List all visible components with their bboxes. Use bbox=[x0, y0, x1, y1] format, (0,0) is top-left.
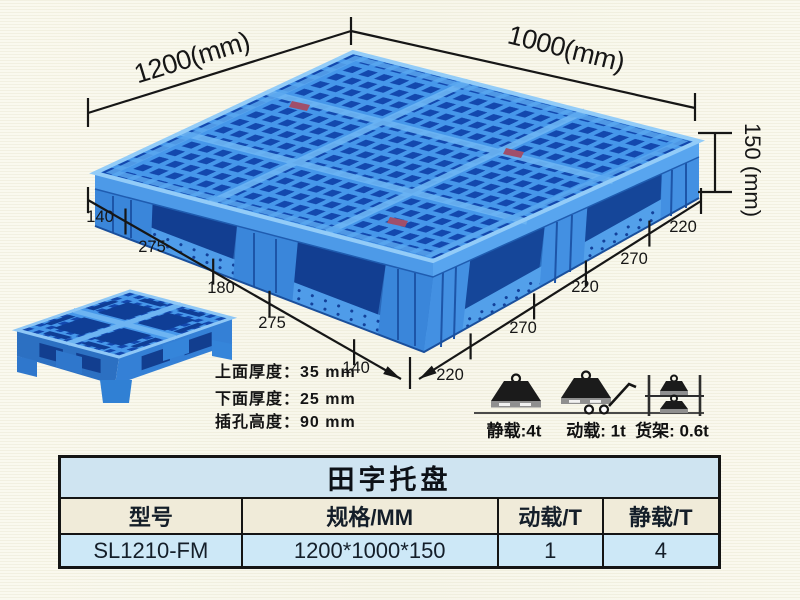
table-title: 田字托盘 bbox=[60, 457, 720, 499]
header-dynamic-load: 动载/T bbox=[498, 498, 603, 534]
pallet-product-sheet: 1200(mm) 1000(mm) 150 (mm) 140 275 180 2… bbox=[0, 0, 800, 600]
static-load-icon bbox=[491, 375, 541, 408]
dim-label-height: 150 (mm) bbox=[741, 123, 763, 217]
spec-bottom-thickness: 下面厚度：25 mm bbox=[215, 385, 356, 409]
header-static-load: 静载/T bbox=[603, 498, 720, 534]
header-spec: 规格/MM bbox=[242, 498, 498, 534]
header-model: 型号 bbox=[60, 498, 242, 534]
spec-fork-slot-height: 插孔高度：90 mm bbox=[215, 408, 356, 432]
spec-top-thickness: 上面厚度：35 mm bbox=[215, 358, 356, 382]
dim-label-left-3: 180 bbox=[207, 280, 235, 297]
dim-label-left-4: 275 bbox=[258, 315, 286, 332]
cell-dynamic-load: 1 bbox=[498, 534, 603, 568]
static-load-label: 静载:4t bbox=[487, 417, 542, 442]
cell-spec: 1200*1000*150 bbox=[242, 534, 498, 568]
dim-label-left-2: 275 bbox=[138, 239, 166, 256]
dim-label-left-1: 140 bbox=[86, 209, 114, 226]
dynamic-load-icon bbox=[561, 372, 636, 414]
rack-load-icon bbox=[645, 375, 704, 416]
rack-load-label: 货架: 0.6t bbox=[635, 417, 709, 442]
spec-table: 田字托盘 型号 规格/MM 动载/T 静载/T SL1210-FM 1200*1… bbox=[58, 455, 721, 569]
dim-label-right-4: 270 bbox=[509, 320, 537, 337]
cell-static-load: 4 bbox=[603, 534, 720, 568]
dim-label-right-3: 220 bbox=[571, 279, 599, 296]
dim-label-right-5: 220 bbox=[436, 367, 464, 384]
pallet-bottom-view bbox=[17, 291, 232, 403]
dynamic-load-label: 动载: 1t bbox=[566, 417, 626, 442]
dim-label-right-1: 220 bbox=[669, 219, 697, 236]
dim-label-right-2: 270 bbox=[620, 251, 648, 268]
table-row: SL1210-FM 1200*1000*150 1 4 bbox=[60, 534, 720, 568]
cell-model: SL1210-FM bbox=[60, 534, 242, 568]
dimension-line-height bbox=[698, 133, 732, 192]
table-header-row: 型号 规格/MM 动载/T 静载/T bbox=[60, 498, 720, 534]
table-title-row: 田字托盘 bbox=[60, 457, 720, 499]
load-capacity-icons bbox=[474, 372, 704, 417]
